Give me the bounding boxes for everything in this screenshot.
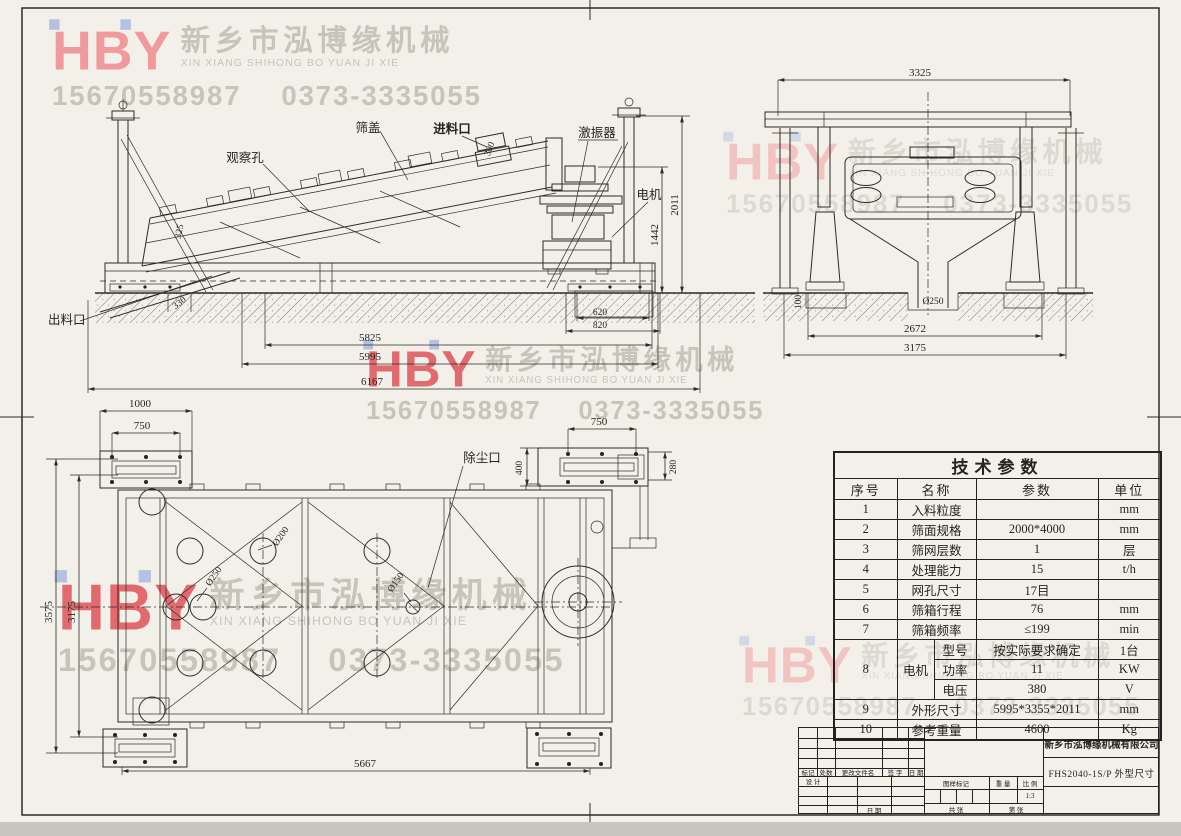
table-title: 技术参数: [834, 452, 1161, 479]
dim-dust-height: 280: [669, 460, 679, 475]
col-header-name: 名称: [897, 479, 976, 500]
drawing-sheet: HBY 新乡市泓博缘机械 XIN XIANG SHIHONG BO YUAN J…: [0, 0, 1181, 836]
dim-total-height: 2011: [669, 194, 681, 216]
plan-view: Ø250 Ø200 Ø150 1000 750: [40, 398, 679, 775]
cell-value: 按实际要求确定: [976, 640, 1098, 660]
dim-base-outer: 820: [593, 321, 608, 331]
label-screen-cover: 筛盖: [355, 120, 380, 135]
dim-width-total: 3575: [43, 601, 55, 624]
cell-unit: 1台: [1098, 640, 1161, 660]
cell-unit: mm: [1098, 600, 1161, 620]
lid-clamps: [159, 137, 532, 216]
cell-no: 5: [834, 580, 897, 600]
plan-clamps: [190, 484, 540, 728]
dim-base-length: 5667: [354, 758, 377, 770]
dim-base-inner-end: 2672: [904, 323, 926, 335]
tb-company: 新乡市泓博缘机械有限公司: [1045, 731, 1158, 757]
cell-name: 筛网层数: [897, 540, 976, 560]
mount-bracket-top-left: [100, 451, 192, 488]
cell-value: ≤199: [976, 620, 1098, 640]
table-title-row: 技术参数: [834, 452, 1161, 479]
cell-name: 入料粒度: [897, 500, 976, 520]
cell-value: 2000*4000: [976, 520, 1098, 540]
tb-sheets-total: 共 张: [949, 804, 964, 814]
end-view: 3325: [763, 67, 1093, 359]
cell-no: 1: [834, 500, 897, 520]
label-motor: 电机: [636, 188, 662, 202]
cell-subname: 型号: [934, 640, 976, 660]
cell-value: 15: [976, 560, 1098, 580]
table-row: 2筛面规格2000*4000mm: [834, 520, 1161, 540]
table-row: 8 电机 型号 按实际要求确定 1台: [834, 640, 1161, 660]
dim-bracket-len: 1000: [129, 398, 152, 410]
right-mast: [612, 98, 646, 263]
label-discharge-outlet: 出料口: [48, 313, 86, 327]
cell-value: 11: [976, 660, 1098, 680]
side-view: 观察孔 筛盖 进料口 300 激振器 电机 出料口 325 1442 2011: [48, 98, 755, 393]
mount-bracket-bottom-left: [103, 729, 187, 767]
tb-sheet-no: 第 张: [1009, 804, 1024, 814]
dim-dust-bolt: 750: [591, 416, 608, 428]
background-strip: [0, 822, 1181, 836]
cell-value: 17目: [976, 580, 1098, 600]
cell-unit: min: [1098, 620, 1161, 640]
dim-width-top: 3325: [909, 67, 932, 79]
col-header-no: 序号: [834, 479, 897, 500]
cell-unit: [1098, 580, 1161, 600]
cell-value: 5995*3355*2011: [976, 700, 1098, 720]
cell-name: 筛箱频率: [897, 620, 976, 640]
cell-value: [976, 500, 1098, 520]
tb-label-weight: 重 量: [996, 778, 1011, 788]
table-row: 1入料粒度mm: [834, 500, 1161, 520]
cell-no: 3: [834, 540, 897, 560]
cell-subname: 功率: [934, 660, 976, 680]
left-mast: [106, 99, 140, 263]
dim-dust-width: 400: [515, 461, 525, 476]
title-block: 标记 处数 更改文件名 签 字 日 期 设 计 日 期 图样标记 重 量 比 例…: [798, 727, 1159, 814]
cell-value: 380: [976, 680, 1098, 700]
dim-length-frame: 5995: [359, 351, 382, 363]
mount-bracket-bottom-right: [527, 728, 611, 768]
cell-unit: V: [1098, 680, 1161, 700]
label-exciter: 激振器: [578, 126, 616, 140]
cell-no: 9: [834, 700, 897, 720]
dim-pit-depth: 100: [794, 295, 804, 310]
tb-drawing-title: FHS2040-1S/P 外型尺寸: [1045, 760, 1158, 786]
tb-label-design: 设 计: [806, 776, 821, 786]
table-row: 5网孔尺寸17目: [834, 580, 1161, 600]
cell-unit: KW: [1098, 660, 1161, 680]
cell-no: 2: [834, 520, 897, 540]
col-header-unit: 单位: [1098, 479, 1161, 500]
cell-unit: mm: [1098, 520, 1161, 540]
tb-label-date2: 日 期: [867, 805, 882, 815]
dim-chute-dia: Ø250: [922, 297, 943, 307]
dim-base-inner: 620: [593, 308, 608, 318]
tb-label-date: 日 期: [909, 767, 924, 777]
table-row: 9外形尺寸5995*3355*2011mm: [834, 700, 1161, 720]
dim-feed-width: 300: [483, 141, 498, 158]
screen-box: [142, 138, 562, 272]
dim-incline: 325: [174, 223, 187, 239]
tb-label-changed-file: 更改文件名: [842, 767, 875, 777]
dim-length-inner: 5825: [359, 332, 382, 344]
table-header-row: 序号 名称 参数 单位: [834, 479, 1161, 500]
dim-width-frame: 3175: [66, 601, 78, 624]
cell-unit: mm: [1098, 500, 1161, 520]
screen-body-section: [845, 147, 1021, 219]
cell-value: 76: [976, 600, 1098, 620]
cell-unit: mm: [1098, 700, 1161, 720]
cell-name: 网孔尺寸: [897, 580, 976, 600]
dim-base-outer-end: 3175: [904, 342, 927, 354]
plan-rails: [160, 498, 586, 714]
col-header-value: 参数: [976, 479, 1098, 500]
cell-name: 筛面规格: [897, 520, 976, 540]
suspension-legs: [806, 112, 1044, 290]
footing-plates: [110, 284, 652, 291]
dim-hole-large: Ø250: [204, 565, 224, 588]
dim-hole-small: Ø150: [386, 571, 406, 594]
tb-label-signature: 签 字: [888, 767, 903, 777]
cell-unit: 层: [1098, 540, 1161, 560]
dim-length-total: 6167: [361, 376, 384, 388]
dim-motor-height: 1442: [649, 224, 661, 246]
table-row: 7筛箱频率≤199min: [834, 620, 1161, 640]
cell-no: 8: [834, 640, 897, 700]
table-row: 3筛网层数1层: [834, 540, 1161, 560]
motor: [543, 241, 611, 274]
cell-name: 外形尺寸: [897, 700, 976, 720]
cell-name: 筛箱行程: [897, 600, 976, 620]
label-feed-inlet: 进料口: [433, 121, 471, 136]
cell-no: 6: [834, 600, 897, 620]
cell-unit: t/h: [1098, 560, 1161, 580]
cell-value: 1: [976, 540, 1098, 560]
cell-no: 7: [834, 620, 897, 640]
tech-parameters-table: 技术参数 序号 名称 参数 单位 1入料粒度mm 2筛面规格2000*4000m…: [833, 451, 1162, 741]
label-observation-hole: 观察孔: [226, 151, 264, 165]
tb-label-drawing-mark: 图样标记: [943, 778, 969, 788]
label-dust-port: 除尘口: [463, 450, 501, 465]
plan-bracing: [166, 502, 538, 710]
table-row: 6筛箱行程76mm: [834, 600, 1161, 620]
cell-subname: 电压: [934, 680, 976, 700]
tb-label-scale: 比 例: [1023, 778, 1038, 788]
dim-bracket-bolt: 750: [134, 420, 151, 432]
cell-no: 4: [834, 560, 897, 580]
cell-name: 电机: [897, 640, 934, 700]
table-row: 4处理能力15t/h: [834, 560, 1161, 580]
dim-hole-mid: Ø200: [271, 525, 291, 548]
tb-label-count: 处数: [820, 767, 833, 777]
tb-scale-value: 1:3: [1026, 792, 1035, 800]
cell-name: 处理能力: [897, 560, 976, 580]
